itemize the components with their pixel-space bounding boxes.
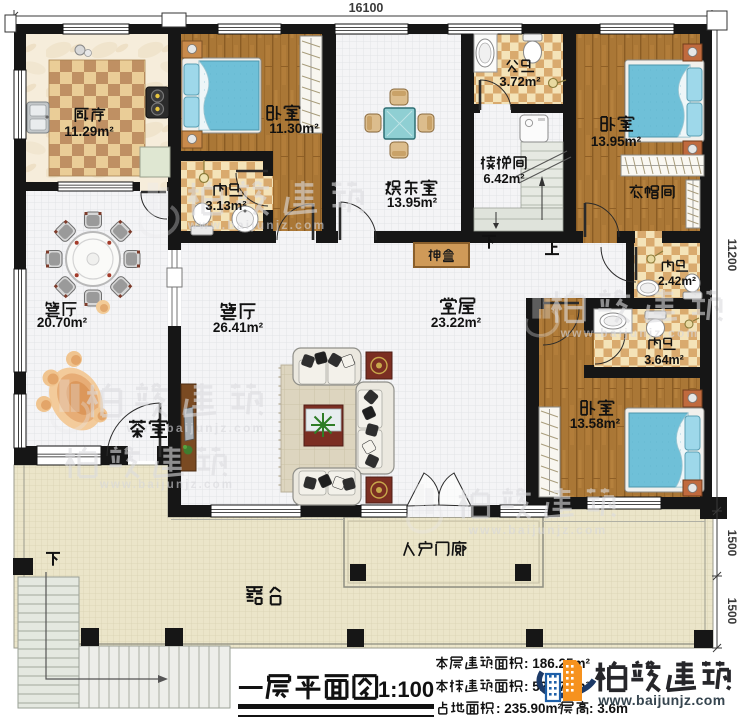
svg-text:3.13m²: 3.13m²	[205, 198, 247, 213]
svg-text:www.baijunjz.com: www.baijunjz.com	[468, 523, 608, 537]
svg-text:6.42m²: 6.42m²	[483, 171, 525, 186]
svg-text:11.30m²: 11.30m²	[269, 121, 319, 136]
svg-text:23.22m²: 23.22m²	[431, 315, 482, 330]
svg-text:www.baijunjz.com: www.baijunjz.com	[187, 218, 327, 232]
svg-text:13.95m²: 13.95m²	[387, 195, 438, 210]
svg-text:11200: 11200	[725, 239, 739, 272]
svg-text:2.42m²: 2.42m²	[658, 274, 696, 288]
svg-text:16100: 16100	[349, 1, 384, 15]
svg-text:www.baijunjz.com: www.baijunjz.com	[99, 479, 234, 491]
svg-text:3.64m²: 3.64m²	[644, 353, 684, 367]
svg-text:20.70m²: 20.70m²	[37, 315, 88, 330]
svg-text:1500: 1500	[725, 530, 739, 557]
svg-text:3.72m²: 3.72m²	[499, 74, 541, 89]
svg-text:13.58m²: 13.58m²	[570, 416, 621, 431]
svg-text:: 235.90m²: : 235.90m²	[496, 701, 563, 716]
svg-text:www.baijunjz.com: www.baijunjz.com	[126, 421, 266, 435]
svg-text:11.29m²: 11.29m²	[64, 124, 114, 139]
svg-text:www.baijunjz.com: www.baijunjz.com	[597, 692, 725, 708]
svg-text:1:100: 1:100	[378, 677, 434, 702]
svg-text:26.41m²: 26.41m²	[213, 320, 264, 335]
svg-text:1500: 1500	[725, 598, 739, 625]
svg-text:www.baijunjz.com: www.baijunjz.com	[560, 326, 700, 340]
svg-text:13.95m²: 13.95m²	[591, 134, 642, 149]
